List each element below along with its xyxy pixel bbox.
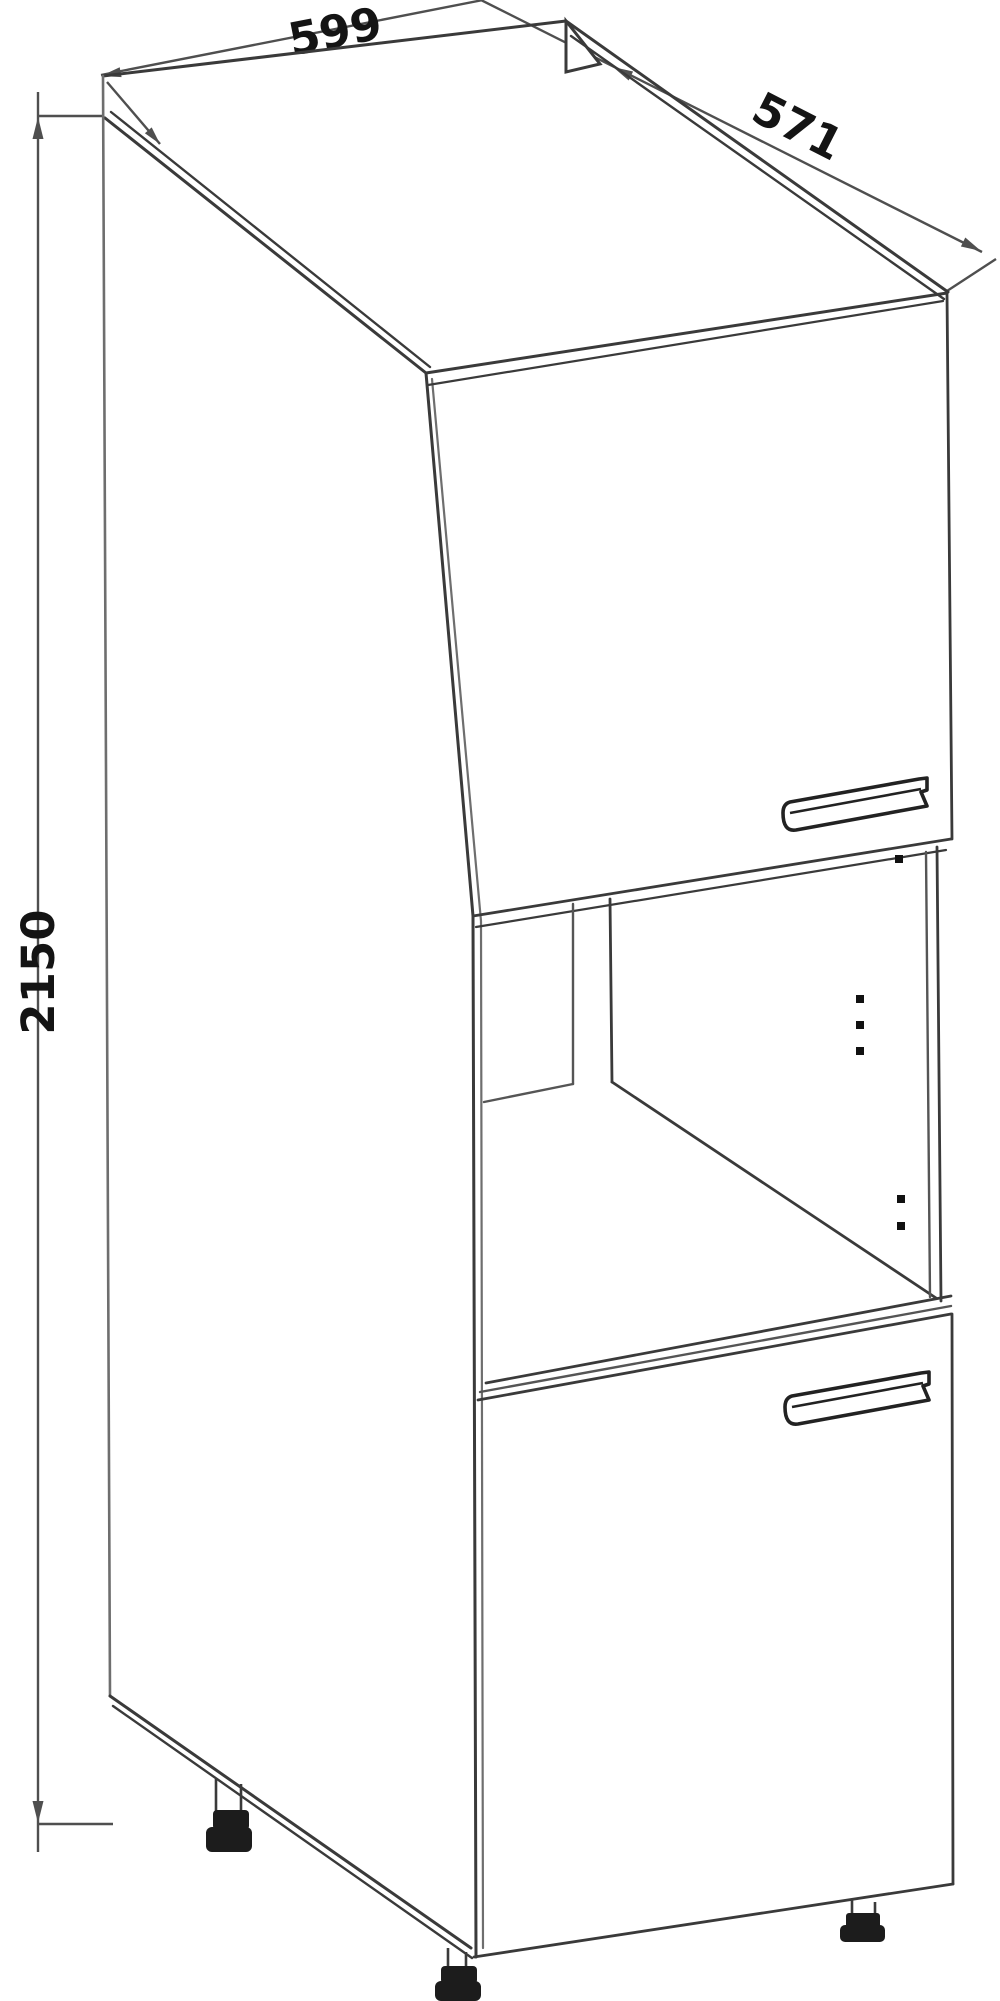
hinge-hole-dot	[856, 1047, 864, 1055]
depth-arrow-lower	[961, 238, 981, 252]
top-front-left-edge-inner	[111, 112, 430, 367]
upper-door-bottom-edge-outer	[473, 839, 951, 916]
upper-door-top-edge-inner	[428, 301, 943, 385]
upper-handle-body	[783, 778, 927, 830]
niche-bottom-shelf-edge-top	[486, 1296, 951, 1383]
height-arrow-top	[33, 117, 44, 139]
hinge-hole-dot	[897, 1222, 905, 1230]
foot-base	[206, 1827, 252, 1852]
niche-floor-right-edge	[612, 1082, 936, 1298]
niche-right-edge-inner	[926, 852, 930, 1297]
upper-door-bottom-edge-inner	[476, 850, 946, 927]
side-bottom-edge-inner	[113, 1706, 472, 1958]
upper-door-right-edge	[947, 293, 952, 839]
side-back-edge	[103, 76, 110, 1696]
lower-door-bottom-edge	[474, 1884, 953, 1957]
depth-dimension-line	[481, 0, 982, 252]
foot-base	[435, 1981, 481, 2001]
upper-door-top-edge-outer	[426, 293, 947, 373]
top-back-right-edge-outer	[566, 21, 948, 292]
hinge-hole-dot	[897, 1195, 905, 1203]
height-arrow-bottom	[33, 1801, 44, 1823]
width-label: 599	[284, 0, 386, 66]
cabinet-dimension-drawing: 2150 599 571	[0, 0, 1000, 2001]
back-corner-triangle	[566, 21, 600, 72]
depth-extension-corner	[947, 259, 996, 291]
upper-door-handle	[783, 778, 927, 830]
niche-floor-back-edge	[484, 1084, 573, 1102]
foot-front-right	[840, 1900, 885, 1942]
technical-drawing-canvas: 2150 599 571	[0, 0, 1000, 2001]
lower-door-right-edge	[952, 1314, 953, 1884]
niche-right-edge-outer	[937, 847, 941, 1301]
lower-handle-body	[785, 1372, 929, 1424]
side-bottom-edge-outer	[110, 1696, 471, 1948]
lower-door-handle	[785, 1372, 929, 1424]
top-back-right-edge-inner	[571, 36, 944, 299]
cabinet-front-left-edge	[426, 373, 483, 1957]
niche-back-left-corner	[610, 899, 612, 1082]
height-label: 2150	[12, 909, 65, 1034]
hinge-hole-dot	[856, 995, 864, 1003]
top-front-left-edge-outer	[105, 118, 426, 373]
hinge-hole-dot	[895, 855, 903, 863]
hinge-holes	[856, 855, 905, 1230]
hinge-hole-dot	[856, 1021, 864, 1029]
upper-door	[426, 293, 952, 927]
dimension-depth	[481, 0, 996, 291]
oven-niche	[480, 847, 951, 1392]
cabinet-side-panel	[103, 76, 472, 1958]
front-left-edge-outer	[426, 373, 476, 1957]
foot-base	[840, 1925, 885, 1942]
